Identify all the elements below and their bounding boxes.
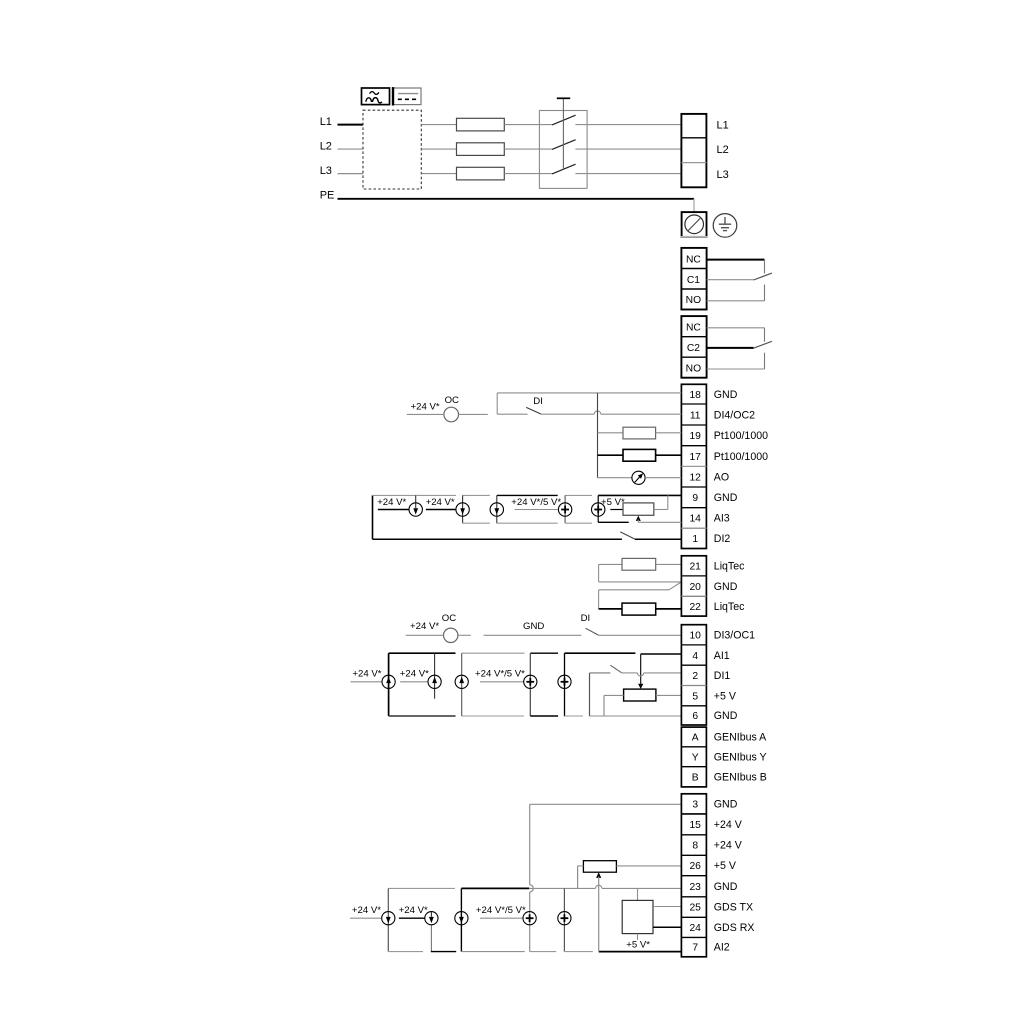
svg-text:NC: NC <box>686 323 701 334</box>
svg-text:1: 1 <box>692 534 698 545</box>
svg-text:C2: C2 <box>687 343 700 354</box>
svg-text:GND: GND <box>714 799 738 811</box>
svg-text:GENIbus Y: GENIbus Y <box>714 752 767 764</box>
svg-text:22: 22 <box>689 602 701 613</box>
svg-text:+24 V*: +24 V* <box>377 497 406 508</box>
svg-text:+24 V*: +24 V* <box>400 668 429 679</box>
svg-text:+24 V*: +24 V* <box>399 905 428 916</box>
svg-text:DI: DI <box>581 613 591 624</box>
svg-text:DI1: DI1 <box>714 670 731 682</box>
svg-text:GND: GND <box>714 881 738 893</box>
svg-text:10: 10 <box>689 631 701 642</box>
svg-text:5: 5 <box>692 691 698 702</box>
svg-text:L3: L3 <box>717 169 729 181</box>
svg-text:GENIbus A: GENIbus A <box>714 732 767 744</box>
svg-text:OC: OC <box>442 613 456 624</box>
svg-text:OC: OC <box>445 395 459 406</box>
svg-text:DI: DI <box>533 396 543 407</box>
svg-text:B: B <box>692 773 699 784</box>
svg-text:25: 25 <box>689 903 701 914</box>
svg-text:23: 23 <box>689 882 701 893</box>
svg-text:C1: C1 <box>687 275 700 286</box>
svg-text:+5 V: +5 V <box>714 690 737 702</box>
svg-text:Pt100/1000: Pt100/1000 <box>714 430 768 442</box>
svg-text:11: 11 <box>690 411 701 422</box>
svg-text:NO: NO <box>686 363 701 374</box>
svg-text:8: 8 <box>692 841 698 852</box>
svg-text:+24 V*/5 V*: +24 V*/5 V* <box>476 905 526 916</box>
svg-text:LiqTec: LiqTec <box>714 561 745 573</box>
svg-text:GDS TX: GDS TX <box>714 902 753 914</box>
svg-text:19: 19 <box>689 431 701 442</box>
svg-text:A: A <box>692 733 699 744</box>
svg-text:12: 12 <box>689 472 701 483</box>
svg-text:DI3/OC1: DI3/OC1 <box>714 630 755 642</box>
svg-text:NO: NO <box>686 295 701 306</box>
svg-text:GND: GND <box>714 710 738 722</box>
svg-text:DI4/OC2: DI4/OC2 <box>714 410 755 422</box>
svg-text:4: 4 <box>692 651 698 662</box>
svg-text:Y: Y <box>692 753 699 764</box>
svg-text:AO: AO <box>714 471 729 483</box>
svg-text:GDS RX: GDS RX <box>714 922 755 934</box>
svg-text:21: 21 <box>689 562 701 573</box>
svg-text:Pt100/1000: Pt100/1000 <box>714 451 768 463</box>
svg-text:14: 14 <box>689 514 701 525</box>
svg-text:+24 V*: +24 V* <box>352 905 381 916</box>
svg-text:L1: L1 <box>320 116 332 128</box>
svg-text:L3: L3 <box>320 165 332 177</box>
svg-text:L2: L2 <box>320 141 332 153</box>
svg-text:AI1: AI1 <box>714 650 730 662</box>
svg-text:+5 V: +5 V <box>714 860 737 872</box>
svg-text:LiqTec: LiqTec <box>714 601 745 613</box>
svg-text:24: 24 <box>689 923 701 934</box>
svg-text:GND: GND <box>714 389 738 401</box>
svg-text:+24 V*/5 V*: +24 V*/5 V* <box>475 668 525 679</box>
svg-text:26: 26 <box>689 861 701 872</box>
svg-text:GND: GND <box>714 581 738 593</box>
svg-text:+24 V*: +24 V* <box>426 497 455 508</box>
svg-text:NC: NC <box>686 254 701 265</box>
svg-text:+24 V*/5 V*: +24 V*/5 V* <box>511 497 561 508</box>
svg-text:AI2: AI2 <box>714 942 730 954</box>
svg-text:GND: GND <box>523 621 544 632</box>
svg-text:9: 9 <box>692 493 698 504</box>
svg-text:20: 20 <box>689 582 701 593</box>
svg-text:GENIbus B: GENIbus B <box>714 772 767 784</box>
svg-text:+24 V: +24 V <box>714 840 743 852</box>
svg-text:3: 3 <box>692 800 698 811</box>
svg-text:+5 V*: +5 V* <box>626 939 650 950</box>
svg-text:2: 2 <box>692 671 698 682</box>
svg-text:17: 17 <box>689 452 701 463</box>
svg-text:+24 V*: +24 V* <box>352 668 381 679</box>
svg-text:15: 15 <box>689 820 701 831</box>
svg-text:DI2: DI2 <box>714 533 731 545</box>
svg-text:PE: PE <box>320 189 335 201</box>
svg-text:+24 V: +24 V <box>714 819 743 831</box>
svg-text:AI3: AI3 <box>714 513 730 525</box>
svg-text:L1: L1 <box>717 120 729 132</box>
svg-text:L2: L2 <box>717 144 729 156</box>
svg-text:6: 6 <box>692 711 698 722</box>
svg-text:GND: GND <box>714 492 738 504</box>
svg-text:+24 V*: +24 V* <box>411 401 440 412</box>
svg-text:+24 V*: +24 V* <box>410 621 439 632</box>
svg-text:7: 7 <box>692 943 698 954</box>
svg-text:18: 18 <box>689 390 701 401</box>
